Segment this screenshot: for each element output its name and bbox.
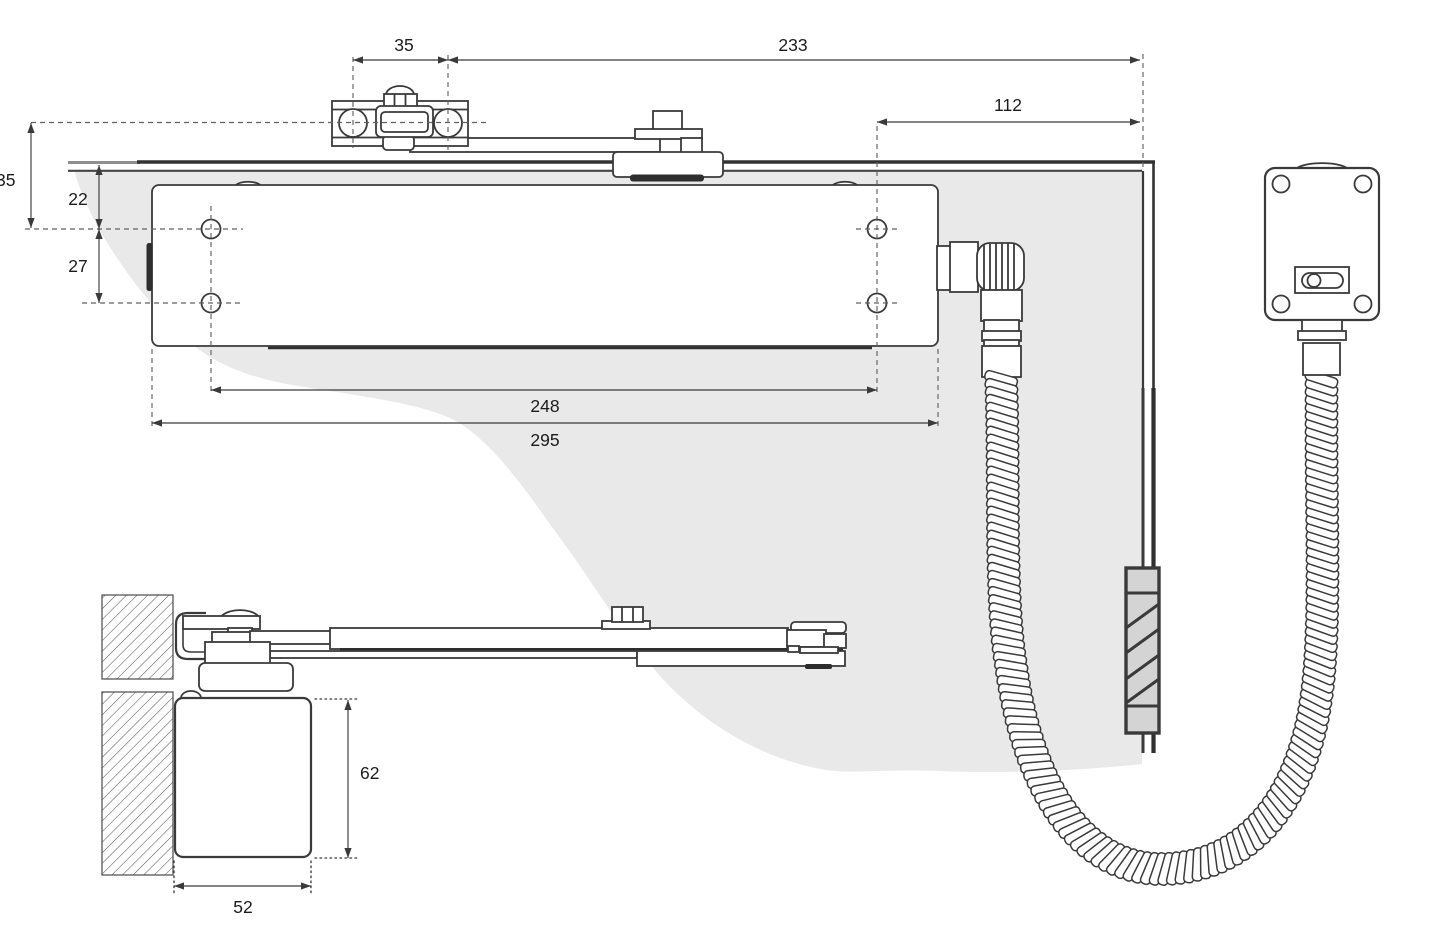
dim-label-hole-row-spacing: 27 — [68, 256, 87, 276]
junction-box — [1265, 163, 1379, 375]
dim-label-cord-exit-to-corner: 112 — [994, 95, 1022, 115]
wall-hatch-upper — [102, 595, 173, 679]
closer-body-side — [175, 698, 311, 857]
diagram-canvas: 35 233 112 35 22 27 248 295 62 52 — [0, 0, 1445, 931]
dim-label-body-depth: 52 — [233, 897, 252, 917]
door-closer-diagram: 35 233 112 35 22 27 248 295 62 52 — [0, 0, 1445, 931]
box-screw-hole — [1273, 176, 1290, 193]
pivot-housing — [199, 663, 293, 691]
dim-label-bracket-to-corner: 233 — [778, 35, 807, 55]
box-screw-hole — [1355, 176, 1372, 193]
dim-label-bracket-screw-spacing: 35 — [394, 35, 413, 55]
wall-hatch-lower — [102, 692, 173, 875]
bracket-bolt — [384, 94, 417, 107]
closer-body-plan — [147, 182, 939, 348]
dim-label-body-length: 295 — [530, 430, 559, 450]
box-cable-gland — [1298, 320, 1346, 375]
arm-bolt — [612, 607, 643, 622]
connector-elbow — [981, 290, 1022, 321]
box-screw-hole — [1355, 296, 1372, 313]
dim-label-body-height: 62 — [360, 763, 379, 783]
body-side-slot — [147, 243, 153, 291]
cord-sleeve — [1126, 568, 1159, 733]
box-screw-hole — [1273, 296, 1290, 313]
dim-label-hole-span: 248 — [530, 396, 559, 416]
slide-arm-plan — [332, 86, 723, 182]
dim-label-edge-to-hole-row: 22 — [68, 189, 87, 209]
dim-label-axis-to-hole-row: 35 — [0, 170, 15, 190]
